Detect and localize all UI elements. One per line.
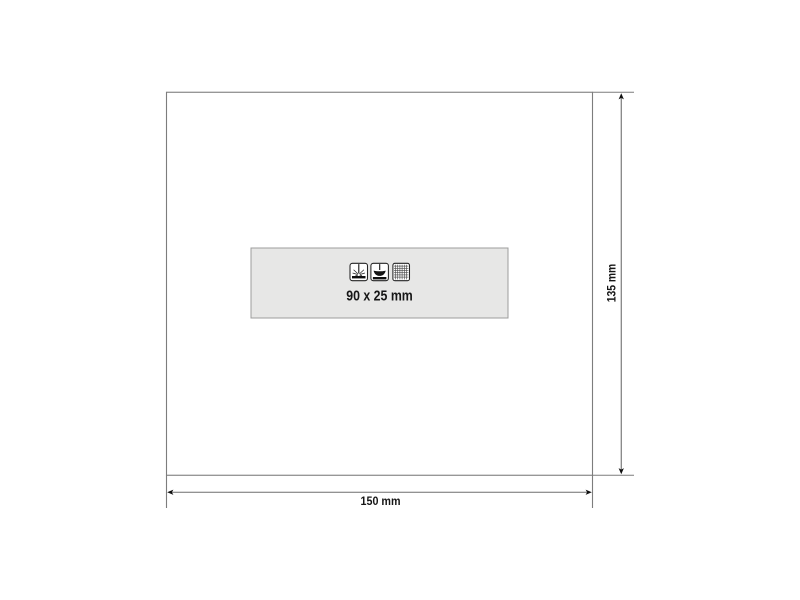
svg-text:135 mm: 135 mm <box>605 264 619 303</box>
svg-text:150 mm: 150 mm <box>361 494 401 508</box>
svg-text:90 x 25 mm: 90 x 25 mm <box>346 288 413 305</box>
